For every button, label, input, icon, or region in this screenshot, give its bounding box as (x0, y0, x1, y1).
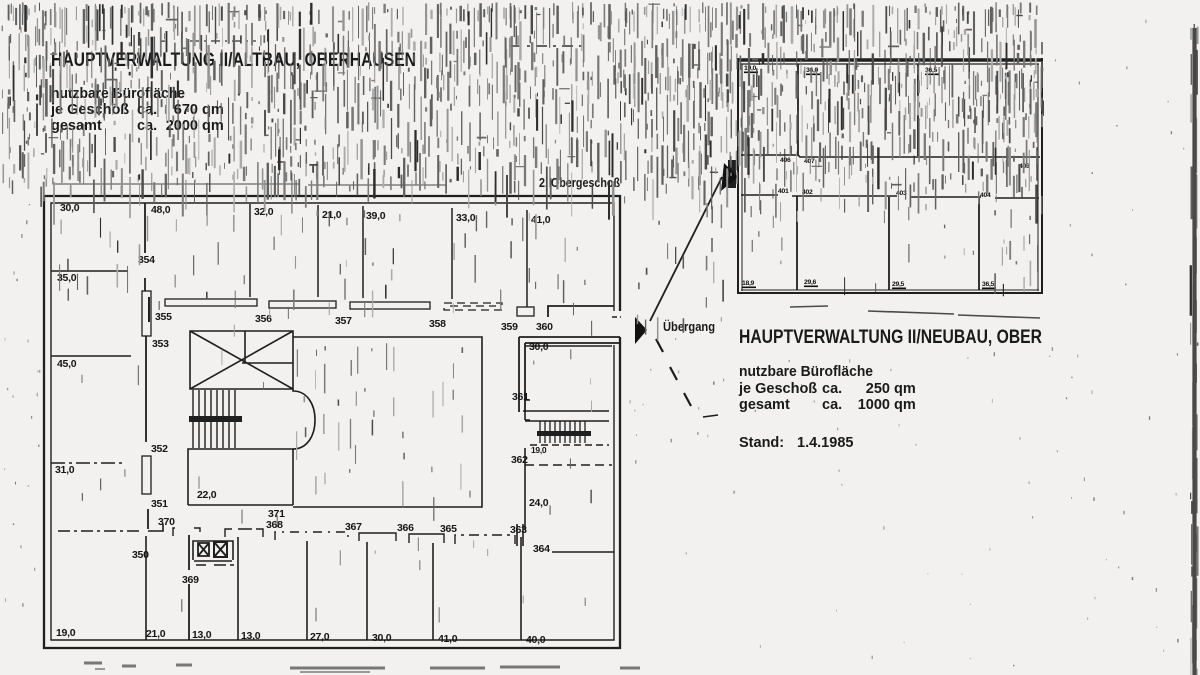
svg-text:367: 367 (345, 521, 362, 533)
svg-text:gesamtca.1000qm: gesamtca.1000qm (739, 397, 916, 413)
svg-text:29,6: 29,6 (804, 279, 817, 286)
svg-text:404: 404 (980, 192, 991, 199)
svg-text:406: 406 (780, 157, 791, 164)
svg-text:30,0: 30,0 (60, 202, 80, 214)
svg-text:360: 360 (536, 321, 553, 333)
svg-text:359: 359 (501, 321, 518, 333)
svg-text:368: 368 (266, 519, 283, 531)
svg-text:355: 355 (155, 311, 172, 323)
svg-text:je Geschoßca.670qm: je Geschoßca.670qm (50, 102, 224, 118)
svg-text:39,0: 39,0 (366, 210, 386, 222)
svg-text:nutzbare Bürofläche: nutzbare Bürofläche (739, 364, 873, 380)
svg-text:27,0: 27,0 (310, 631, 330, 643)
svg-text:365: 365 (440, 523, 457, 535)
svg-text:363: 363 (510, 524, 527, 536)
svg-text:357: 357 (335, 315, 352, 327)
svg-text:18,9: 18,9 (742, 280, 755, 287)
svg-text:21,0: 21,0 (146, 628, 166, 640)
svg-text:48,0: 48,0 (151, 204, 171, 216)
svg-text:30,0: 30,0 (529, 341, 549, 353)
svg-text:21,0: 21,0 (322, 209, 342, 221)
svg-text:Stand:1.4.1985: Stand:1.4.1985 (739, 435, 853, 451)
svg-text:40,0: 40,0 (526, 634, 546, 646)
svg-text:352: 352 (151, 443, 168, 455)
svg-text:41,0: 41,0 (531, 214, 551, 226)
svg-text:45,0: 45,0 (57, 358, 77, 370)
svg-text:22,0: 22,0 (197, 489, 217, 501)
svg-text:36,5: 36,5 (982, 281, 995, 288)
svg-text:351: 351 (151, 498, 168, 510)
svg-text:HAUPTVERWALTUNG II/NEUBAU, OBE: HAUPTVERWALTUNG II/NEUBAU, OBER (739, 327, 1042, 348)
svg-text:353: 353 (152, 338, 169, 350)
svg-text:350: 350 (132, 549, 149, 561)
svg-text:30,0: 30,0 (372, 632, 392, 644)
svg-text:je Geschoßca.250qm: je Geschoßca.250qm (738, 381, 916, 397)
svg-text:33,0: 33,0 (456, 212, 476, 224)
svg-text:nutzbare Bürofläche: nutzbare Bürofläche (51, 86, 185, 102)
svg-text:13,0: 13,0 (192, 629, 212, 641)
svg-text:19,0: 19,0 (531, 445, 547, 455)
svg-text:354: 354 (138, 254, 155, 266)
svg-text:29,5: 29,5 (892, 281, 905, 288)
svg-text:13,0: 13,0 (241, 630, 261, 642)
svg-text:19,0: 19,0 (744, 65, 757, 72)
svg-text:401: 401 (778, 188, 789, 195)
svg-text:19,0: 19,0 (56, 627, 76, 639)
svg-text:366: 366 (397, 522, 414, 534)
svg-text:358: 358 (429, 318, 446, 330)
svg-text:364: 364 (533, 543, 550, 555)
svg-text:370: 370 (158, 516, 175, 528)
svg-text:24,0: 24,0 (529, 497, 549, 509)
svg-text:369: 369 (182, 574, 199, 586)
svg-text:gesamtca.2000qm: gesamtca.2000qm (51, 118, 224, 134)
svg-text:41,0: 41,0 (438, 633, 458, 645)
svg-text:362: 362 (511, 454, 528, 466)
svg-text:361: 361 (512, 391, 529, 403)
svg-text:Übergang: Übergang (663, 319, 715, 334)
svg-text:31,0: 31,0 (55, 464, 75, 476)
